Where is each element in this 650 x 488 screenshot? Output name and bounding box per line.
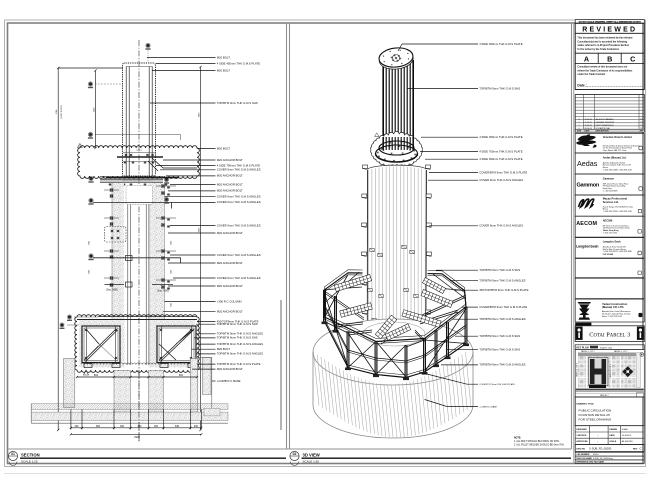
svg-text:300: 300	[154, 425, 159, 428]
svg-text:COVER 9mm THK G.M.S ANGLES: COVER 9mm THK G.M.S ANGLES	[479, 178, 523, 182]
svg-text:4 SIDE 450mm THK G.M.S PLATE: 4 SIDE 450mm THK G.M.S PLATE	[479, 42, 523, 46]
svg-text:COVER 9mm THK G.M.S ANGLES: COVER 9mm THK G.M.S ANGLES	[217, 195, 261, 199]
svg-text:Langdon Seah: Langdon Seah	[603, 240, 621, 244]
svg-text:S.MAD: S.MAD	[622, 428, 629, 431]
svg-text:COVER 9mm THK G.M.S ANGLES: COVER 9mm THK G.M.S ANGLES	[217, 223, 261, 227]
svg-text:DWG NO: DWG NO	[576, 448, 585, 450]
svg-text:APPROVED: APPROVED	[576, 440, 588, 443]
svg-text:864: 864	[94, 374, 99, 377]
svg-text:Date :: Date :	[577, 84, 586, 88]
svg-text:SCALE 1:7500: SCALE 1:7500	[600, 346, 612, 349]
svg-text:CHECKED: CHECKED	[576, 435, 586, 437]
svg-text:(VERIFY ON SITE): (VERIFY ON SITE)	[61, 105, 63, 119]
svg-text:Venetian Orient Limited: Venetian Orient Limited	[603, 135, 632, 139]
svg-text:3: 3	[578, 119, 579, 121]
svg-text:M20 BOLT: M20 BOLT	[217, 146, 231, 150]
svg-text:Consultant review of this: Consultant review of this document does …	[577, 66, 627, 69]
svg-text:5.4 for action by the Tra: 5.4 for action by the Trade Contractor.	[577, 48, 619, 51]
svg-text:11.05.06: 11.05.06	[585, 122, 592, 124]
svg-text:AECOM: AECOM	[576, 221, 597, 227]
svg-text:A: A	[584, 55, 589, 64]
svg-text:+COMB R.C BASE: +COMB R.C BASE	[217, 379, 241, 383]
svg-text:COVER 9mm THK G.M.S ANGLES: COVER 9mm THK G.M.S ANGLES	[217, 168, 261, 172]
svg-text:COVER 9mm THK G.M.S ANGLES: COVER 9mm THK G.M.S ANGLES	[217, 276, 261, 280]
svg-text:C: C	[630, 55, 635, 64]
svg-text:TOP/BTM 9mm THK G.M.S PLATE: TOP/BTM 9mm THK G.M.S PLATE	[217, 362, 261, 366]
svg-text:TOP/BTM 9mm THK G.M.S SHS: TOP/BTM 9mm THK G.M.S SHS	[217, 101, 258, 105]
svg-text:REFERENCE DWG FILE NAME: REFERENCE DWG FILE NAME	[576, 461, 604, 464]
svg-text:2. ALL FILLET WELDED SHOULD BE: 2. ALL FILLET WELDED SHOULD BE 6mm THK.	[514, 444, 565, 447]
svg-text:3D VIEW: 3D VIEW	[303, 453, 320, 458]
svg-text:01: 01	[11, 452, 15, 456]
svg-text:SYM: SYM	[577, 131, 582, 133]
svg-text:864: 864	[96, 425, 101, 428]
svg-text:COVER/TOP 9mm THK G.M.S PLATE: COVER/TOP 9mm THK G.M.S PLATE	[479, 383, 515, 386]
svg-text:M20 ANCHOR BOLT: M20 ANCHOR BOLT	[217, 310, 243, 314]
svg-text:M20 BOLT: M20 BOLT	[217, 347, 231, 351]
svg-text:Services Ltd.: Services Ltd.	[603, 200, 619, 204]
svg-text:2-M 2: 2-M 2	[136, 150, 142, 152]
svg-text:FOUNTAIN DETAIL 25: FOUNTAIN DETAIL 25	[579, 413, 611, 417]
svg-text:SCALE: SCALE	[609, 440, 616, 443]
svg-text:COVER 9mm THK G.M.S ANGLES: COVER 9mm THK G.M.S ANGLES	[217, 253, 261, 257]
svg-text:Macau T +853 2870 1118: Macau T +853 2870 1118	[602, 316, 622, 318]
svg-text:TOP/BTM 9mm THK G.M.S ANGLES: TOP/BTM 9mm THK G.M.S ANGLES	[479, 363, 525, 367]
svg-text:TOP/BTM 9mm THK G.M.S SHS: TOP/BTM 9mm THK G.M.S SHS	[217, 336, 258, 340]
svg-text:DESCRIPTION: DESCRIPTION	[596, 131, 610, 133]
svg-text:M20 BOLT: M20 BOLT	[217, 68, 231, 72]
svg-text:14-JUN-15: 14-JUN-15	[622, 435, 633, 437]
svg-text:TOP/BTM 9mm THK G.M.S SHS: TOP/BTM 9mm THK G.M.S SHS	[479, 86, 520, 90]
svg-text:19.06.06: 19.06.06	[585, 119, 592, 121]
svg-text:TOP/BTM 9mm THK G.M.S ANGLES: TOP/BTM 9mm THK G.M.S ANGLES	[479, 279, 525, 283]
svg-text:TOP/BTM 9mm THK G.M.S ANGLES: TOP/BTM 9mm THK G.M.S ANGLES	[217, 352, 263, 356]
svg-text:TOP/BTM 9mm THK G.M.S SHS: TOP/BTM 9mm THK G.M.S SHS	[479, 348, 520, 352]
svg-text:300: 300	[75, 425, 80, 428]
svg-text:Venetian: Venetian	[579, 140, 592, 144]
svg-text:REVIEWED: REVIEWED	[582, 26, 637, 33]
svg-text:300: 300	[194, 425, 199, 428]
svg-text:+COMB R.C BASE: +COMB R.C BASE	[479, 405, 497, 408]
svg-text:DESIGNED: DESIGNED	[576, 429, 587, 431]
svg-text:4 SIDE 450mm THK G.M.S PLATE: 4 SIDE 450mm THK G.M.S PLATE	[479, 135, 523, 139]
svg-text:M20 ANCHOR BOLT: M20 ANCHOR BOLT	[217, 189, 243, 193]
svg-text:status referred to in Proje: status referred to in Project Procedure …	[577, 44, 629, 47]
svg-text:(5no. M20): (5no. M20)	[106, 289, 118, 292]
svg-text:Yadea Construction: Yadea Construction	[602, 302, 628, 306]
svg-text:under the Trade Contract.: under the Trade Contract.	[577, 73, 606, 76]
svg-text:4 SIDE 450mm THK G.M.S PLATE: 4 SIDE 450mm THK G.M.S PLATE	[479, 157, 523, 161]
svg-text:DRAWING TITLE: DRAWING TITLE	[576, 403, 594, 406]
svg-text:DATE: DATE	[609, 434, 615, 437]
svg-text:PARCEL 2: PARCEL 2	[600, 394, 609, 397]
svg-text:SCALE 1:50: SCALE 1:50	[303, 460, 320, 464]
svg-text:Aedas: Aedas	[577, 159, 598, 168]
svg-text:This document has been reviewe: This document has been reviewed by the r…	[577, 37, 632, 40]
svg-text:TOP/BTM 9mm THK G.M.S ANGLES: TOP/BTM 9mm THK G.M.S ANGLES	[217, 342, 263, 346]
svg-text:TOP/BTM 9mm THK G.M.S ANGLES: TOP/BTM 9mm THK G.M.S ANGLES	[479, 317, 525, 321]
svg-text:LangdonSeah: LangdonSeah	[576, 245, 598, 249]
svg-text:M20 ANCHOR BOLT: M20 ANCHOR BOLT	[217, 158, 243, 162]
svg-text:PARCEL 1, LOT 1: PARCEL 1, LOT 1	[575, 363, 578, 377]
svg-text:M20 ANCHOR BOLT: M20 ANCHOR BOLT	[217, 231, 243, 235]
svg-text:COVER 9mm THK G.M.S ANGLES: COVER 9mm THK G.M.S ANGLES	[479, 224, 523, 228]
svg-text:4 SIDE 450mm THK G.M.S PLATE: 4 SIDE 450mm THK G.M.S PLATE	[217, 61, 261, 65]
svg-text:F 28 333 688: F 28 333 688	[603, 254, 613, 256]
svg-text:M20 ANCHOR BOLT: M20 ANCHOR BOLT	[217, 261, 243, 265]
svg-text:AECOM: AECOM	[603, 218, 613, 222]
svg-text:DWG FILE NAME: DWG FILE NAME	[576, 457, 592, 460]
svg-text:M20 ANCHOR BOLT: M20 ANCHOR BOLT	[217, 367, 243, 371]
svg-text:REV: REV	[633, 448, 638, 450]
svg-text:19.04.06: 19.04.06	[585, 125, 592, 127]
svg-text:864: 864	[179, 374, 184, 377]
svg-text:Taipa, Macau SAR, P.R. China: Taipa, Macau SAR, P.R. China	[603, 149, 627, 152]
svg-text:relieve the Trade Contractor: relieve the Trade Contractor of its resp…	[577, 69, 633, 72]
svg-text:S-SUB_FD_05050: S-SUB_FD_05050	[589, 447, 612, 451]
svg-text:PARCEL 1, LOT 1: PARCEL 1, LOT 1	[609, 364, 612, 378]
svg-text:02: 02	[293, 452, 297, 456]
svg-text:COTAI PARCEL 3: COTAI PARCEL 3	[589, 332, 630, 339]
svg-text:Consultants(s) and is accor: Consultants(s) and is accorded the follo…	[577, 40, 627, 43]
svg-text:Gammon: Gammon	[577, 183, 600, 189]
svg-text:AS-BUILT DRAWING: AS-BUILT DRAWING	[596, 118, 614, 121]
svg-text:PUBLIC CIRCULATION: PUBLIC CIRCULATION	[579, 409, 612, 413]
svg-text:450: 450	[138, 425, 143, 428]
svg-text:TOP/BTM 9mm THK G.M.S SHS: TOP/BTM 9mm THK G.M.S SHS	[217, 322, 258, 326]
svg-text:SCALE 1:25: SCALE 1:25	[21, 460, 38, 464]
svg-text:T +853 2833 1088 F +853 2833: T +853 2833 1088 F +853 2833 1033	[603, 169, 632, 171]
svg-text:845: 845	[175, 425, 180, 428]
svg-text:300: 300	[120, 425, 125, 428]
svg-text:T +853 2837 2623 F +853 2837: T +853 2837 2623 F +853 2837 2618	[603, 211, 632, 213]
svg-text:FOR STEEL DRAWING: FOR STEEL DRAWING	[579, 418, 612, 422]
svg-text:COVER 9mm THK G.M.S ANGLES: COVER 9mm THK G.M.S ANGLES	[217, 200, 261, 204]
svg-text:+300 R.C COLUMN: +300 R.C COLUMN	[217, 299, 242, 303]
svg-text:450/TOP/BTM 9mm THK G.M.S PLAT: 450/TOP/BTM 9mm THK G.M.S PLATE	[479, 288, 528, 292]
svg-text:KEY PLAN: KEY PLAN	[576, 347, 588, 350]
svg-text:2: 2	[578, 122, 579, 124]
svg-text:COVER/BTM 9mm THK G.M.S PLATE: COVER/BTM 9mm THK G.M.S PLATE	[479, 170, 527, 174]
svg-text:T +852 2317 7000: T +852 2317 7000	[603, 232, 617, 234]
svg-text:CAD NUMBER: CAD NUMBER	[576, 453, 590, 456]
svg-text:(Macau) CO. LTD.: (Macau) CO. LTD.	[602, 305, 624, 309]
svg-text:TOP/BTM 9mm THK G.M.S SHS: TOP/BTM 9mm THK G.M.S SHS	[479, 268, 520, 272]
svg-text:(5no. M20): (5no. M20)	[157, 290, 169, 293]
svg-text:M20 BOLT: M20 BOLT	[217, 55, 231, 59]
svg-text:T + 852 2516 8823: T + 852 2516 8823	[603, 190, 618, 192]
svg-text:TOP/BTM 9mm THK G.M.S SHS: TOP/BTM 9mm THK G.M.S SHS	[479, 334, 520, 338]
svg-text:M20 ANCHOR BOLT: M20 ANCHOR BOLT	[217, 174, 243, 178]
svg-text:DATE: DATE	[585, 130, 591, 133]
svg-text:FIRST SUBMISSION: FIRST SUBMISSION	[596, 125, 614, 127]
svg-text:M20 ANCHOR BOLT: M20 ANCHOR BOLT	[217, 182, 243, 186]
svg-text:B: B	[607, 55, 612, 64]
svg-text:PARCEL 1, LOT 2: PARCEL 1, LOT 2	[581, 350, 595, 353]
svg-text:AS SHOWN: AS SHOWN	[622, 440, 633, 443]
svg-text:2900: 2900	[134, 436, 140, 439]
svg-text:PARCEL 1, LOT 2: PARCEL 1, LOT 2	[614, 350, 628, 353]
svg-text:Aedas (Macau) Ltd.: Aedas (Macau) Ltd.	[603, 155, 627, 159]
svg-text:1. ALL BOLT SHOULD BE FIXING O: 1. ALL BOLT SHOULD BE FIXING ON SITE.	[514, 440, 560, 443]
svg-text:COVER/BTM 9mm THK G.M.S PLATE: COVER/BTM 9mm THK G.M.S PLATE	[479, 305, 527, 309]
svg-text:COTAI: COTAI	[595, 385, 601, 388]
svg-text:GENERAL REVISION: GENERAL REVISION	[596, 121, 615, 124]
svg-text:M20 ANCHOR BOLT: M20 ANCHOR BOLT	[217, 284, 243, 288]
svg-text:NOTE:: NOTE:	[514, 438, 521, 440]
svg-text:SECTION: SECTION	[21, 453, 40, 458]
svg-text:1: 1	[578, 125, 579, 127]
svg-text:4 SIDE 700mm THK G.M.S PLATE: 4 SIDE 700mm THK G.M.S PLATE	[479, 149, 523, 153]
svg-text:DRAWN: DRAWN	[609, 428, 617, 431]
svg-text:Gammon: Gammon	[603, 176, 615, 180]
